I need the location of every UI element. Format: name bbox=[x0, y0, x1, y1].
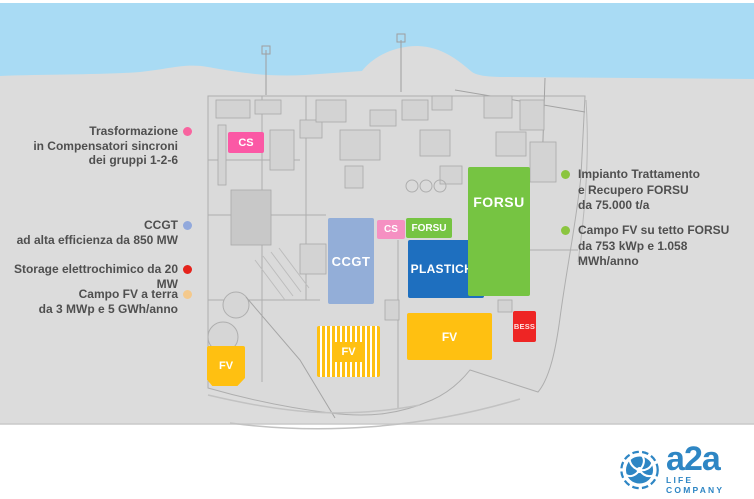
facility-box-forsu-small: FORSU bbox=[406, 218, 452, 238]
a2a-logo: a2a LIFE COMPANY bbox=[619, 444, 754, 495]
annotation-campo-fv-terra: Campo FV a terra da 3 MWp e 5 GWh/anno bbox=[0, 287, 192, 316]
facility-box-fv-striped: FV bbox=[317, 326, 380, 377]
annotation-impianto-forsu: Impianto Trattamento e Recupero FORSU da… bbox=[561, 167, 751, 214]
annotation-ccgt: CCGT ad alta efficienza da 850 MW bbox=[0, 218, 192, 247]
annotation-campo-fv-tetto: Campo FV su tetto FORSU da 753 kWp e 1.0… bbox=[561, 223, 751, 270]
facility-box-cs-main: CS bbox=[228, 132, 264, 153]
facility-box-fv-large: FV bbox=[407, 313, 492, 360]
bullet-dot-blue bbox=[183, 221, 192, 230]
bullet-dot-green bbox=[561, 226, 570, 235]
facility-box-ccgt: CCGT bbox=[328, 218, 374, 304]
fv-striped-label-chip: FV bbox=[334, 342, 364, 362]
annotation-text: Trasformazione in Compensatori sincroni … bbox=[33, 124, 178, 168]
bullet-dot-green bbox=[561, 170, 570, 179]
annotation-text: Campo FV su tetto FORSU da 753 kWp e 1.0… bbox=[578, 223, 729, 270]
annotation-text: Impianto Trattamento e Recupero FORSU da… bbox=[578, 167, 700, 214]
annotation-trasformazione: Trasformazione in Compensatori sincroni … bbox=[0, 124, 192, 168]
bullet-dot-red bbox=[183, 265, 192, 274]
slide-canvas: CS CCGT CS FORSU PLASTICHE FORSU FV FV F… bbox=[0, 0, 754, 499]
annotation-text: Campo FV a terra da 3 MWp e 5 GWh/anno bbox=[39, 287, 178, 316]
logo-tagline-text: LIFE COMPANY bbox=[666, 475, 754, 495]
facility-box-cs-small: CS bbox=[377, 220, 405, 239]
bullet-dot-pink bbox=[183, 127, 192, 136]
annotation-text: CCGT ad alta efficienza da 850 MW bbox=[17, 218, 178, 247]
bullet-dot-tan bbox=[183, 290, 192, 299]
logo-brand-text: a2a bbox=[666, 444, 720, 474]
facility-box-bess: BESS bbox=[513, 311, 536, 342]
facility-box-forsu-main: FORSU bbox=[468, 167, 530, 296]
facility-box-fv-left: FV bbox=[207, 346, 245, 386]
a2a-globe-icon bbox=[619, 449, 660, 491]
